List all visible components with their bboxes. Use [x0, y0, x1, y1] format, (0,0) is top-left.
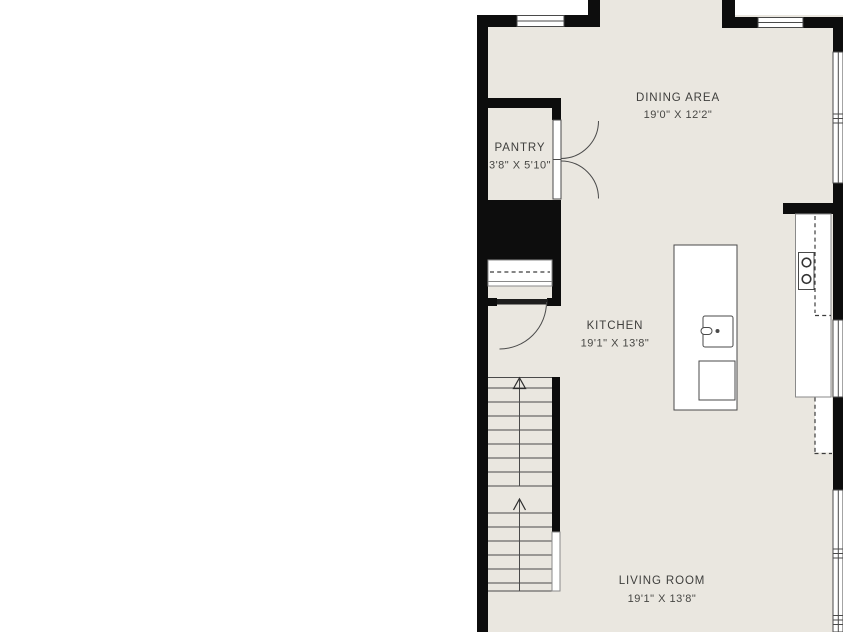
room-dimensions: 19'0" X 12'2" — [644, 109, 713, 121]
window-top-right — [758, 18, 803, 28]
floor-plan-page: DINING AREA 19'0" X 12'2" PANTRY 3'8" X … — [0, 0, 843, 632]
room-name: DINING AREA — [636, 92, 720, 104]
faucet-control-dot — [716, 329, 720, 333]
door-leaf — [497, 299, 548, 305]
stair-railing — [552, 532, 560, 591]
wall-closet-door-jamb-left — [477, 298, 497, 306]
wall-stair-east — [552, 377, 560, 532]
window-right-kitchen — [833, 320, 843, 397]
room-name: PANTRY — [495, 142, 546, 154]
wall-pantry-top — [477, 98, 558, 108]
entry-closet — [488, 260, 552, 286]
door-leaf-lower — [553, 160, 561, 200]
closet-body — [488, 260, 552, 286]
room-name: LIVING ROOM — [619, 575, 706, 587]
wall-closet-door-jamb-right — [547, 298, 561, 306]
island-dishwasher — [699, 361, 735, 400]
wall-pantry-east — [552, 98, 561, 120]
room-dimensions: 3'8" X 5'10" — [489, 160, 551, 172]
door-leaf-upper — [553, 120, 561, 160]
window-top-left — [517, 16, 564, 27]
kitchen-island — [674, 245, 737, 410]
refrigerator-bay — [815, 398, 832, 453]
floor-dining-bump — [588, 0, 735, 16]
room-dimensions: 19'1" X 13'8" — [581, 338, 650, 350]
floor-plan-drawing: DINING AREA 19'0" X 12'2" PANTRY 3'8" X … — [0, 0, 843, 632]
wall-kitchen-partition — [783, 203, 843, 214]
wall-void-block — [477, 200, 561, 262]
room-name: KITCHEN — [587, 320, 644, 332]
window-right-upper — [833, 52, 843, 183]
counter-run — [796, 214, 832, 397]
window-right-living — [833, 490, 843, 632]
burner-icon — [802, 275, 811, 284]
wall-bump-left — [588, 0, 600, 27]
burner-icon — [802, 258, 811, 267]
room-dimensions: 19'1" X 13'8" — [628, 593, 697, 605]
faucet-icon — [701, 328, 712, 335]
